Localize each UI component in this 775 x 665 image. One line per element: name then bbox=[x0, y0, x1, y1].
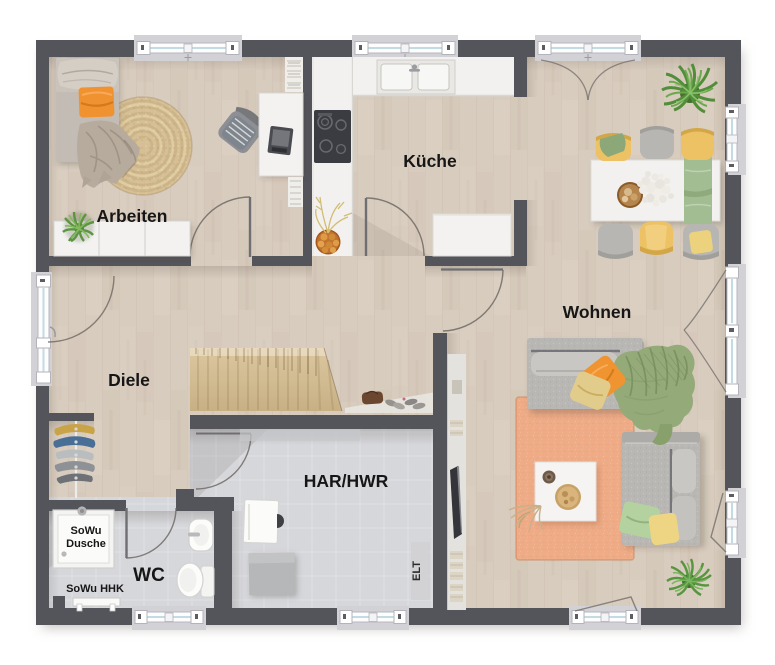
svg-text:Dusche: Dusche bbox=[66, 538, 106, 550]
svg-text:Küche: Küche bbox=[403, 151, 457, 171]
svg-text:Arbeiten: Arbeiten bbox=[97, 206, 168, 226]
svg-text:SoWu: SoWu bbox=[71, 525, 102, 537]
svg-text:Wohnen: Wohnen bbox=[563, 302, 632, 322]
svg-text:Diele: Diele bbox=[108, 370, 150, 390]
svg-text:WC: WC bbox=[133, 565, 165, 586]
svg-text:SoWu HHK: SoWu HHK bbox=[66, 583, 124, 595]
svg-text:HAR/HWR: HAR/HWR bbox=[304, 471, 389, 491]
svg-text:ELT: ELT bbox=[411, 561, 423, 581]
